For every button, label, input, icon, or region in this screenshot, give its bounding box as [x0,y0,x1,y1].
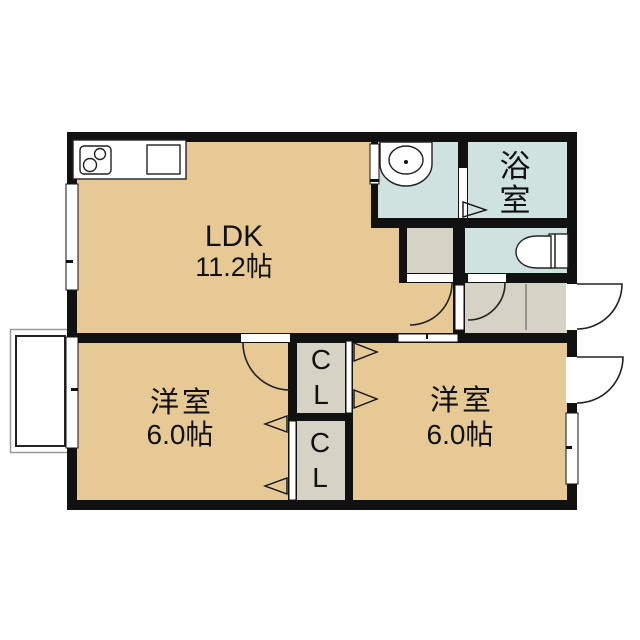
wall-bottom [67,500,577,510]
wall-rooms-top [67,333,577,343]
toilet-tank [549,234,568,268]
sliding-opening-tick [426,334,428,339]
entrance-door-gap [566,284,578,330]
floor-plan-page: LDK 11.2帖 浴 室 洋室 6.0帖 洋室 6.0帖 C L C L [0,0,640,640]
bay-window-inner [16,336,65,446]
closet-top-label-char1: C [311,344,331,375]
toilet-bowl-icon [516,236,551,268]
wall-under-washroom [371,218,577,228]
western-right-label: 洋室 [430,384,494,417]
closet-bottom-sliding-door [289,421,296,500]
right-room-window-tick [566,446,572,449]
western-left-size-label: 6.0帖 [147,419,214,450]
floor-plan-drawing: LDK 11.2帖 浴 室 洋室 6.0帖 洋室 6.0帖 C L C L [0,0,640,640]
bathroom-label-char2: 室 [500,183,531,218]
closet-bottom-label-char1: C [310,427,330,458]
wall-closet-divider [288,413,353,421]
washroom-door [370,144,379,184]
left-room-door-gap [241,334,290,342]
closet-top-sliding-door [346,341,352,413]
storage-floor [407,228,453,273]
wash-basin-drain [404,160,408,164]
toilet-door-gap [468,274,506,282]
ldk-window [66,184,78,290]
left-room-window [66,337,78,448]
closet-bottom-label-char2: L [312,462,328,493]
kitchen-sink-icon [147,145,180,174]
stove-burner-small [95,149,106,160]
ldk-size-label: 11.2帖 [195,252,273,282]
ldk-window-tick [66,260,73,263]
closet-top-label-char2: L [313,379,329,410]
left-room-window-tick [71,388,78,391]
right-room-door-gap [566,357,578,403]
ldk-hall-opening [455,285,464,330]
washroom-door-tick [370,179,379,182]
entrance-hall-floor [465,283,567,333]
storage-door-gap [407,274,453,282]
western-left-label: 洋室 [150,386,214,419]
ldk-label: LDK [205,220,263,253]
stove-burner-large [84,159,97,172]
western-right-size-label: 6.0帖 [427,419,494,450]
bathroom-label-char1: 浴 [500,149,531,184]
